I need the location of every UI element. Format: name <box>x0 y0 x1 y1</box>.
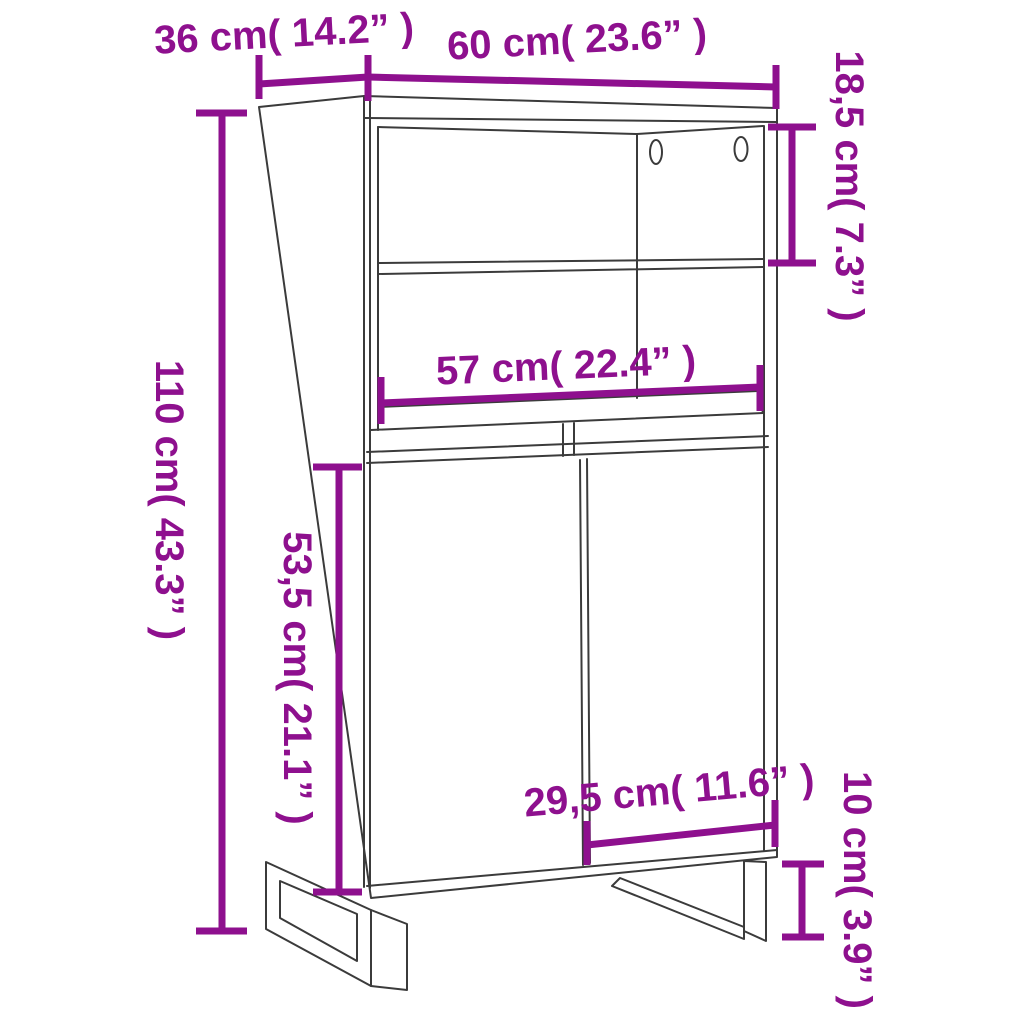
dimension-shelf-height: 18,5 cm( 7.3” ) <box>768 50 871 321</box>
right-leg-strut <box>612 878 744 939</box>
dim-label-depth: 36 cm( 14.2” ) <box>153 5 415 63</box>
dimension-leg-height: 10 cm( 3.9” ) <box>782 771 879 1009</box>
right-leg-post <box>744 861 766 941</box>
dim-label-width: 60 cm( 23.6” ) <box>446 11 708 69</box>
dim-label-leg-height: 10 cm( 3.9” ) <box>835 771 879 1009</box>
dimension-depth: 36 cm( 14.2” ) <box>153 5 415 101</box>
dim-label-height: 110 cm( 43.3” ) <box>147 360 191 640</box>
dim-line <box>368 77 776 87</box>
dimension-width: 60 cm( 23.6” ) <box>368 11 776 109</box>
dimension-diagram: 36 cm( 14.2” ) 60 cm( 23.6” ) 18,5 cm( 7… <box>0 0 1024 1024</box>
dim-line <box>259 77 368 84</box>
diagram-svg: 36 cm( 14.2” ) 60 cm( 23.6” ) 18,5 cm( 7… <box>0 0 1024 1024</box>
left-leg-post <box>371 910 407 990</box>
dim-label-door-height: 53,5 cm( 21.1” ) <box>275 531 319 825</box>
dimension-height: 110 cm( 43.3” ) <box>147 113 247 931</box>
dim-label-shelf-height: 18,5 cm( 7.3” ) <box>827 50 871 321</box>
